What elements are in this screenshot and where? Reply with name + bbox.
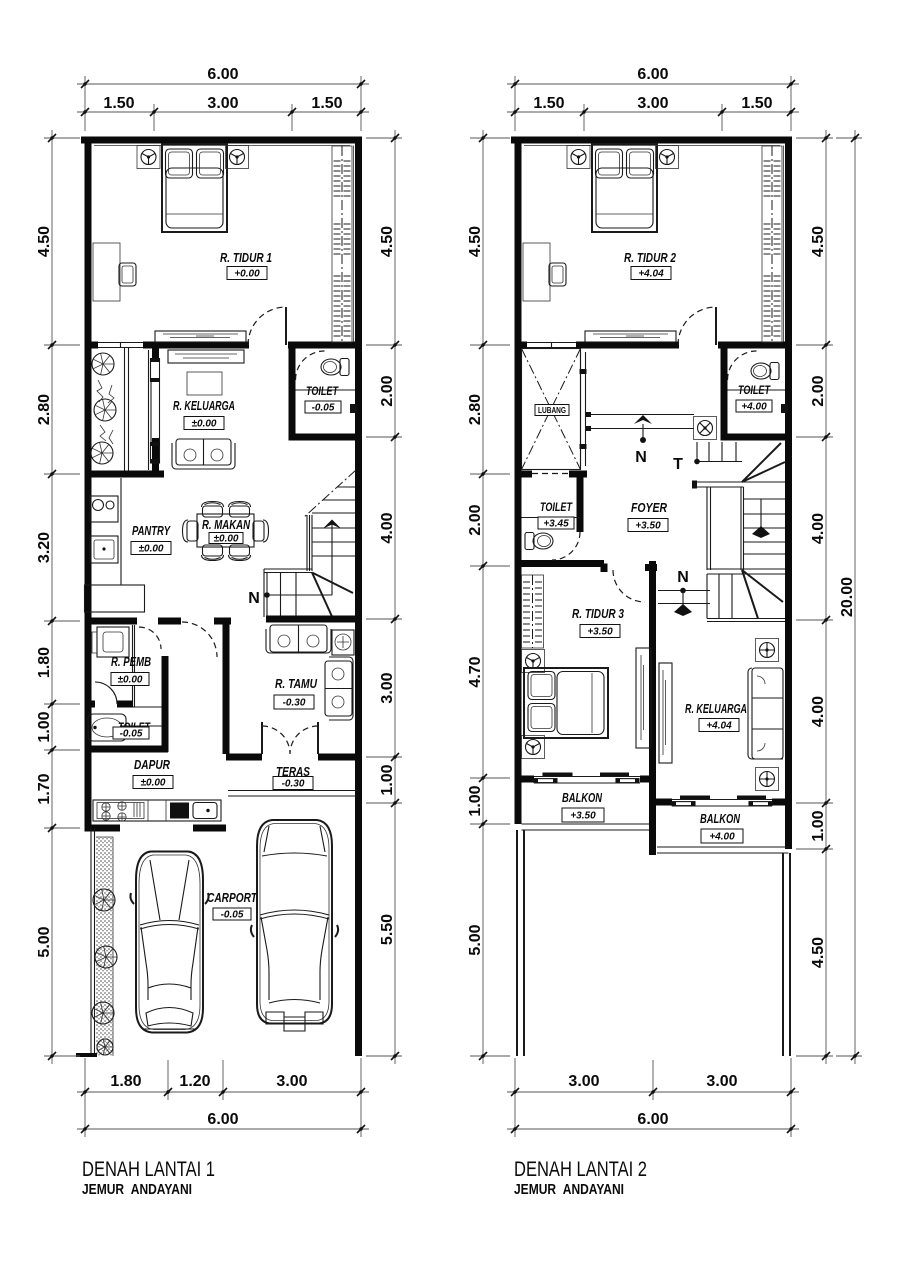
svg-text:LUBANG: LUBANG — [538, 405, 566, 415]
svg-text:-0.30: -0.30 — [283, 698, 306, 709]
svg-text:1.50: 1.50 — [533, 95, 564, 112]
svg-text:3.20: 3.20 — [36, 532, 53, 563]
svg-text:4.50: 4.50 — [379, 226, 396, 257]
svg-text:+3.50: +3.50 — [587, 627, 613, 638]
svg-text:PANTRY: PANTRY — [132, 523, 171, 538]
svg-text:R. TIDUR 1: R. TIDUR 1 — [220, 250, 272, 265]
svg-text:R. TIDUR 2: R. TIDUR 2 — [624, 250, 677, 265]
svg-text:R. MAKAN: R. MAKAN — [202, 517, 250, 532]
svg-text:TOILET: TOILET — [738, 383, 771, 397]
svg-text:3.00: 3.00 — [568, 1073, 599, 1090]
svg-text:4.00: 4.00 — [379, 512, 396, 543]
svg-text:+3.45: +3.45 — [543, 519, 569, 530]
svg-text:4.50: 4.50 — [810, 937, 827, 968]
svg-text:3.00: 3.00 — [207, 95, 238, 112]
svg-text:±0.00: ±0.00 — [139, 544, 164, 555]
svg-text:TOILET: TOILET — [306, 384, 339, 398]
svg-text:6.00: 6.00 — [637, 1111, 668, 1128]
svg-text:+4.00: +4.00 — [741, 402, 767, 413]
svg-text:+3.50: +3.50 — [635, 521, 661, 532]
svg-text:3.00: 3.00 — [379, 672, 396, 703]
svg-text:4.00: 4.00 — [810, 513, 827, 544]
svg-text:1.70: 1.70 — [36, 773, 53, 804]
svg-text:-0.05: -0.05 — [221, 910, 244, 921]
svg-text:-0.30: -0.30 — [282, 779, 305, 790]
svg-text:1.50: 1.50 — [311, 95, 342, 112]
svg-text:T: T — [673, 456, 683, 473]
svg-text:JEMUR ANDAYANI: JEMUR ANDAYANI — [82, 1181, 192, 1198]
svg-text:2.00: 2.00 — [810, 375, 827, 406]
svg-text:R. KELUARGA: R. KELUARGA — [685, 701, 747, 716]
svg-text:2.00: 2.00 — [379, 375, 396, 406]
svg-text:20.00: 20.00 — [839, 577, 856, 617]
svg-text:1.50: 1.50 — [741, 95, 772, 112]
svg-text:1.80: 1.80 — [110, 1073, 141, 1090]
svg-text:-0.05: -0.05 — [120, 729, 143, 740]
svg-text:1.50: 1.50 — [103, 95, 134, 112]
svg-text:R. TIDUR 3: R. TIDUR 3 — [572, 606, 625, 621]
svg-text:CARPORT: CARPORT — [207, 890, 258, 905]
svg-text:+4.04: +4.04 — [638, 269, 664, 280]
svg-text:1.20: 1.20 — [179, 1073, 210, 1090]
svg-text:1.00: 1.00 — [379, 764, 396, 795]
svg-text:2.00: 2.00 — [467, 504, 484, 535]
svg-text:N: N — [677, 569, 689, 586]
svg-text:1.00: 1.00 — [36, 711, 53, 742]
svg-text:DENAH LANTAI 2: DENAH LANTAI 2 — [514, 1158, 647, 1181]
svg-text:4.00: 4.00 — [810, 696, 827, 727]
svg-text:3.00: 3.00 — [706, 1073, 737, 1090]
svg-text:R. PEMB: R. PEMB — [111, 654, 151, 669]
svg-text:6.00: 6.00 — [637, 66, 668, 83]
svg-text:±0.00: ±0.00 — [192, 419, 217, 430]
svg-text:+4.04: +4.04 — [706, 721, 732, 732]
svg-text:-0.05: -0.05 — [312, 403, 335, 414]
svg-text:+3.50: +3.50 — [570, 811, 596, 822]
svg-text:5.00: 5.00 — [467, 924, 484, 955]
svg-text:+4.00: +4.00 — [709, 832, 735, 843]
svg-text:4.50: 4.50 — [810, 226, 827, 257]
svg-text:4.70: 4.70 — [467, 656, 484, 687]
svg-text:3.00: 3.00 — [637, 95, 668, 112]
svg-text:±0.00: ±0.00 — [214, 534, 239, 545]
svg-text:±0.00: ±0.00 — [141, 778, 166, 789]
svg-text:BALKON: BALKON — [700, 811, 740, 826]
svg-text:6.00: 6.00 — [207, 1111, 238, 1128]
svg-text:BALKON: BALKON — [562, 790, 602, 805]
svg-text:TOILET: TOILET — [540, 500, 573, 514]
svg-text:1.00: 1.00 — [467, 785, 484, 816]
svg-text:5.50: 5.50 — [379, 914, 396, 945]
svg-text:4.50: 4.50 — [36, 226, 53, 257]
svg-text:1.80: 1.80 — [36, 647, 53, 678]
svg-text:1.00: 1.00 — [810, 810, 827, 841]
svg-text:±0.00: ±0.00 — [118, 675, 143, 686]
svg-text:R. TAMU: R. TAMU — [275, 676, 317, 691]
svg-text:DENAH LANTAI 1: DENAH LANTAI 1 — [82, 1158, 215, 1181]
svg-text:5.00: 5.00 — [36, 926, 53, 957]
svg-text:6.00: 6.00 — [207, 66, 238, 83]
svg-text:4.50: 4.50 — [467, 226, 484, 257]
svg-text:+0.00: +0.00 — [234, 269, 260, 280]
svg-text:R. KELUARGA: R. KELUARGA — [173, 398, 235, 413]
svg-text:N: N — [635, 449, 647, 466]
svg-text:2.80: 2.80 — [36, 394, 53, 425]
svg-text:3.00: 3.00 — [276, 1073, 307, 1090]
svg-text:2.80: 2.80 — [467, 394, 484, 425]
svg-text:DAPUR: DAPUR — [134, 757, 170, 772]
svg-text:FOYER: FOYER — [631, 500, 667, 515]
svg-text:JEMUR ANDAYANI: JEMUR ANDAYANI — [514, 1181, 624, 1198]
svg-text:N: N — [248, 590, 260, 607]
